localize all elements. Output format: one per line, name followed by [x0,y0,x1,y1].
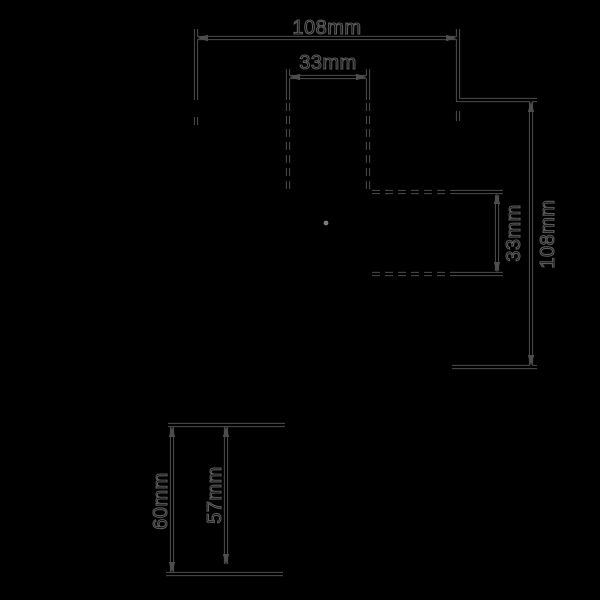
dim-label-top-width: 108mm [292,17,361,39]
technical-drawing-canvas: 108mm 33mm 33mm 108mm 60mm 57mm [0,0,600,600]
dim-label-profile-inner: 57mm [204,466,226,524]
dim-label-profile-outer: 60mm [150,472,172,530]
dim-label-side-height: 108mm [537,199,559,268]
dim-label-cutout-depth: 33mm [503,204,525,262]
center-mark [324,221,329,226]
dimension-drawing: 108mm 33mm 33mm 108mm 60mm 57mm [0,0,600,600]
dim-label-cutout-width: 33mm [299,52,357,74]
